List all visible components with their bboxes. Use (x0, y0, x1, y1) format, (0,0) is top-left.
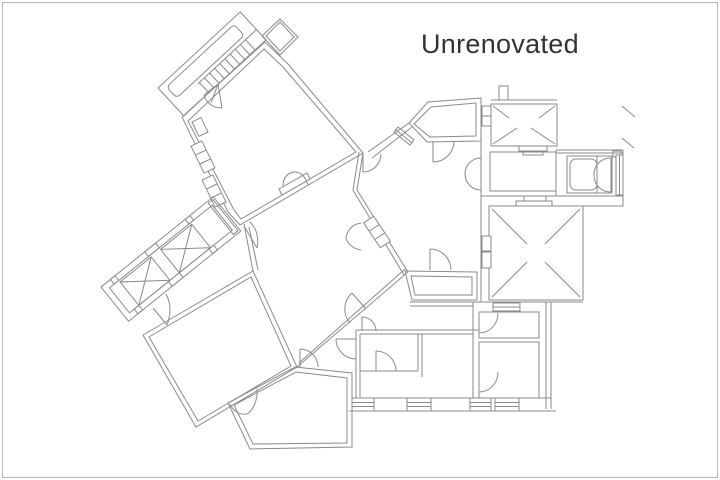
stair-landing (262, 19, 298, 55)
window (407, 398, 431, 411)
south-block (336, 317, 479, 398)
glazing-panel (120, 257, 170, 305)
room-east-mid (481, 152, 556, 196)
glazing-panel (161, 224, 211, 272)
stair-winder-fan (204, 84, 222, 108)
casement-arc (346, 238, 361, 250)
stair-treads (199, 40, 255, 93)
casement-arc (346, 223, 361, 238)
window (482, 252, 491, 268)
door-leaf (153, 308, 167, 325)
central-corridor (297, 98, 481, 367)
window (495, 398, 519, 411)
door-arc (247, 389, 257, 414)
window (364, 216, 391, 248)
door-opening (279, 173, 310, 195)
rooms-south-east (410, 302, 583, 409)
screenshot-canvas: Unrenovated (0, 0, 720, 480)
door-leaf (352, 293, 366, 309)
room-south-west-large (143, 224, 297, 427)
loggia-x-panels (101, 197, 241, 322)
door-arc (479, 313, 498, 333)
south-window-wall (349, 398, 556, 411)
door-arc (345, 293, 352, 323)
door-arc (465, 174, 481, 190)
door-arc (465, 158, 481, 174)
window (191, 141, 215, 173)
door-arc (376, 351, 396, 371)
door-arc (433, 141, 454, 162)
door-arc (430, 249, 451, 270)
door-arc (362, 317, 376, 331)
bathtub (570, 159, 597, 190)
door-arc (363, 154, 381, 172)
door-arc (336, 339, 356, 359)
room-skylight-small (482, 86, 557, 155)
window (352, 398, 374, 411)
window (482, 236, 491, 251)
floor-plan-drawing (0, 0, 720, 480)
entry-hall (368, 98, 481, 162)
court-x-room (482, 196, 583, 300)
door-arc (479, 372, 498, 392)
window (470, 398, 491, 411)
